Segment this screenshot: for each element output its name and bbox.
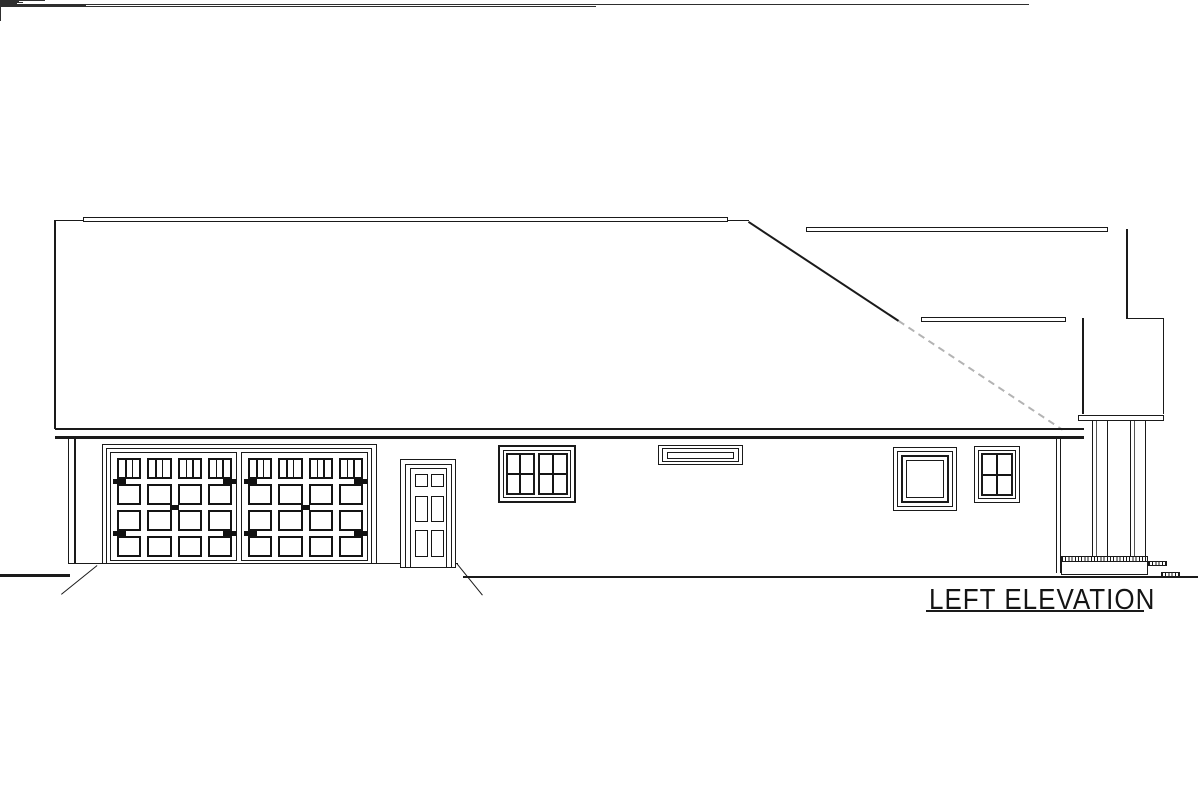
garage-door-panel [117,536,141,557]
drawing-title-underline [926,610,1144,612]
window-muntin-horizontal [983,474,1012,476]
panel-mullion [256,460,258,477]
garage-door-panel [117,510,141,531]
garage-door-panel [147,458,171,479]
garage-door-right [241,452,368,561]
siding-bottom-line [0,6,596,7]
panel-mullion [186,460,188,477]
garage-door-panel [117,484,141,505]
entry-door-panel [415,530,428,557]
garage-door-panel [208,484,232,505]
rear-corner-edge [1163,318,1165,414]
garage-door-panel [248,510,272,531]
roof-left-rake [54,220,56,429]
rear-ridge-cap [806,227,1108,232]
garage-door-panel [278,510,302,531]
garage-door-panel [309,510,333,531]
garage-door-panel [278,484,302,505]
panel-mullion [353,460,355,477]
entry-door-panel [431,496,444,522]
garage-door-hinge [244,479,257,484]
garage-door-panel [248,458,272,479]
garage-door-left [110,452,237,561]
panel-mullion [317,460,319,477]
garage-door-panel [339,458,363,479]
garage-door-panel [178,458,202,479]
foundation-step-line [0,7,1,15]
step-riser-1 [0,15,1,22]
porch-column-shade-line [1134,421,1135,556]
ridge-left-connector [54,220,84,221]
garage-door-hinge [223,479,236,484]
garage-door-handle [170,505,179,510]
garage-door-hinge [354,479,367,484]
eave-fascia-band [55,436,1084,439]
panel-mullion [192,460,194,477]
garage-door-hinge [223,531,236,536]
garage-door-panel [278,458,302,479]
garage-door-panel [147,510,171,531]
garage-door-panel [339,536,363,557]
porch-column [1130,421,1146,556]
panel-mullion [132,460,134,477]
panel-mullion [293,460,295,477]
garage-door-panel [248,484,272,505]
garage-door-panel [309,536,333,557]
double-window-sash-right [538,453,568,496]
garage-door-panel [278,536,302,557]
panel-mullion [125,460,127,477]
elevation-drawing: LEFT ELEVATION [0,0,1200,800]
garage-door-panel [178,484,202,505]
garage-door-panel [208,536,232,557]
garage-door-panel [309,484,333,505]
panel-mullion [222,460,224,477]
ground-line-right [463,576,1198,579]
panel-mullion [162,460,164,477]
bumpout-wall-edge [1082,318,1084,414]
garage-door-panel [309,458,333,479]
garage-door-panel [147,536,171,557]
ground-line-left [0,574,70,577]
garage-door-panel [178,510,202,531]
bumpout-ridge-cap [921,317,1066,322]
grade-diagonal-right [456,563,483,596]
eave-mid-line [0,4,1029,5]
deck-board-edge [1061,556,1148,562]
garage-door-panel [339,484,363,505]
step-tread-1 [1148,561,1167,567]
single-window-sash [981,453,1014,496]
garage-door-panel [248,536,272,557]
main-ridge-cap [83,217,728,222]
garage-door-panel [178,536,202,557]
window-muntin-horizontal [540,473,566,475]
garage-door-panel [208,510,232,531]
panel-mullion [323,460,325,477]
entry-door-panel [415,474,428,487]
garage-door-hinge [113,479,126,484]
rear-gable-edge [1126,229,1128,319]
panel-mullion [155,460,157,477]
panel-mullion [347,460,349,477]
garage-door-hinge [113,531,126,536]
rear-eave-line [1126,318,1164,319]
entry-door-panel [415,496,428,522]
deck-skirt [1061,561,1148,575]
entry-door-slab [410,468,447,568]
entry-door-panel [431,530,444,557]
left-corner-trim-outer [68,439,70,564]
grade-diagonal-left [61,565,98,595]
garage-door-hinge [354,531,367,536]
entry-door-panel [431,474,444,487]
double-window-sash-left [506,453,536,496]
garage-door-panel [117,458,141,479]
transom-window-glass [667,452,735,460]
panel-mullion [286,460,288,477]
right-corner-trim-inner [1060,439,1062,573]
panel-mullion [216,460,218,477]
ridge-right-connector [727,220,749,221]
right-corner-trim-outer [1056,439,1058,573]
panel-mullion [263,460,265,477]
hidden-roof-slope [898,320,1063,430]
drawing-title: LEFT ELEVATION [929,582,1155,617]
porch-roof-band [1078,415,1164,421]
left-corner-trim-inner [74,439,76,564]
garage-door-panel [147,484,171,505]
garage-door-panel [339,510,363,531]
porch-column-shade-line [1096,421,1097,556]
window-muntin-horizontal [508,473,534,475]
eave-top-line [55,428,1084,430]
garage-door-panel [208,458,232,479]
garage-door-handle [301,505,310,510]
picture-window-glass [906,460,945,499]
main-roof-slope [748,221,899,321]
garage-door-hinge [244,531,257,536]
porch-column [1092,421,1108,556]
